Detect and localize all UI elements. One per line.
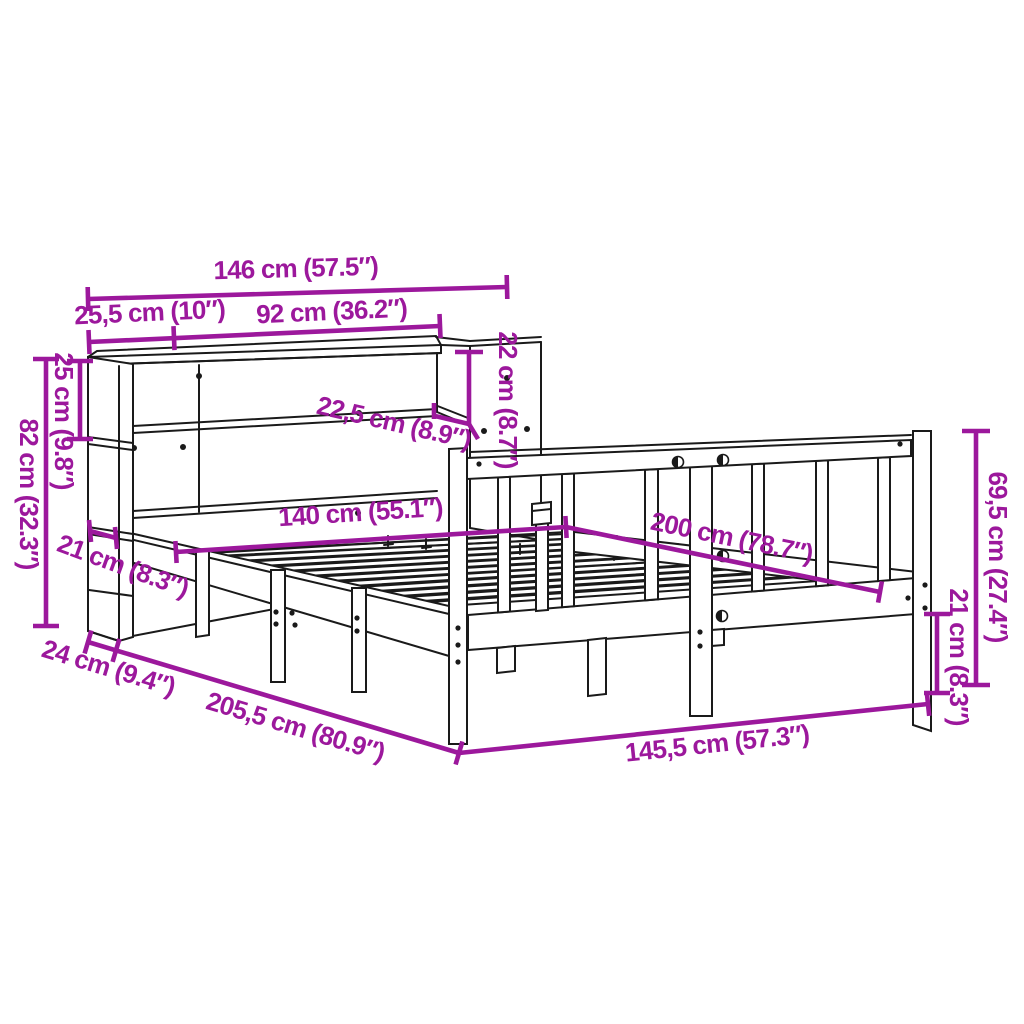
svg-text:21 cm (8.3″): 21 cm (8.3″) <box>944 588 974 725</box>
svg-text:69,5 cm (27.4″): 69,5 cm (27.4″) <box>983 471 1013 642</box>
svg-text:25 cm (9.8″): 25 cm (9.8″) <box>49 352 79 489</box>
svg-text:146 cm (57.5″): 146 cm (57.5″) <box>213 251 378 286</box>
svg-text:22 cm (8.7″): 22 cm (8.7″) <box>493 331 523 468</box>
svg-text:82 cm (32.3″): 82 cm (32.3″) <box>14 419 44 570</box>
